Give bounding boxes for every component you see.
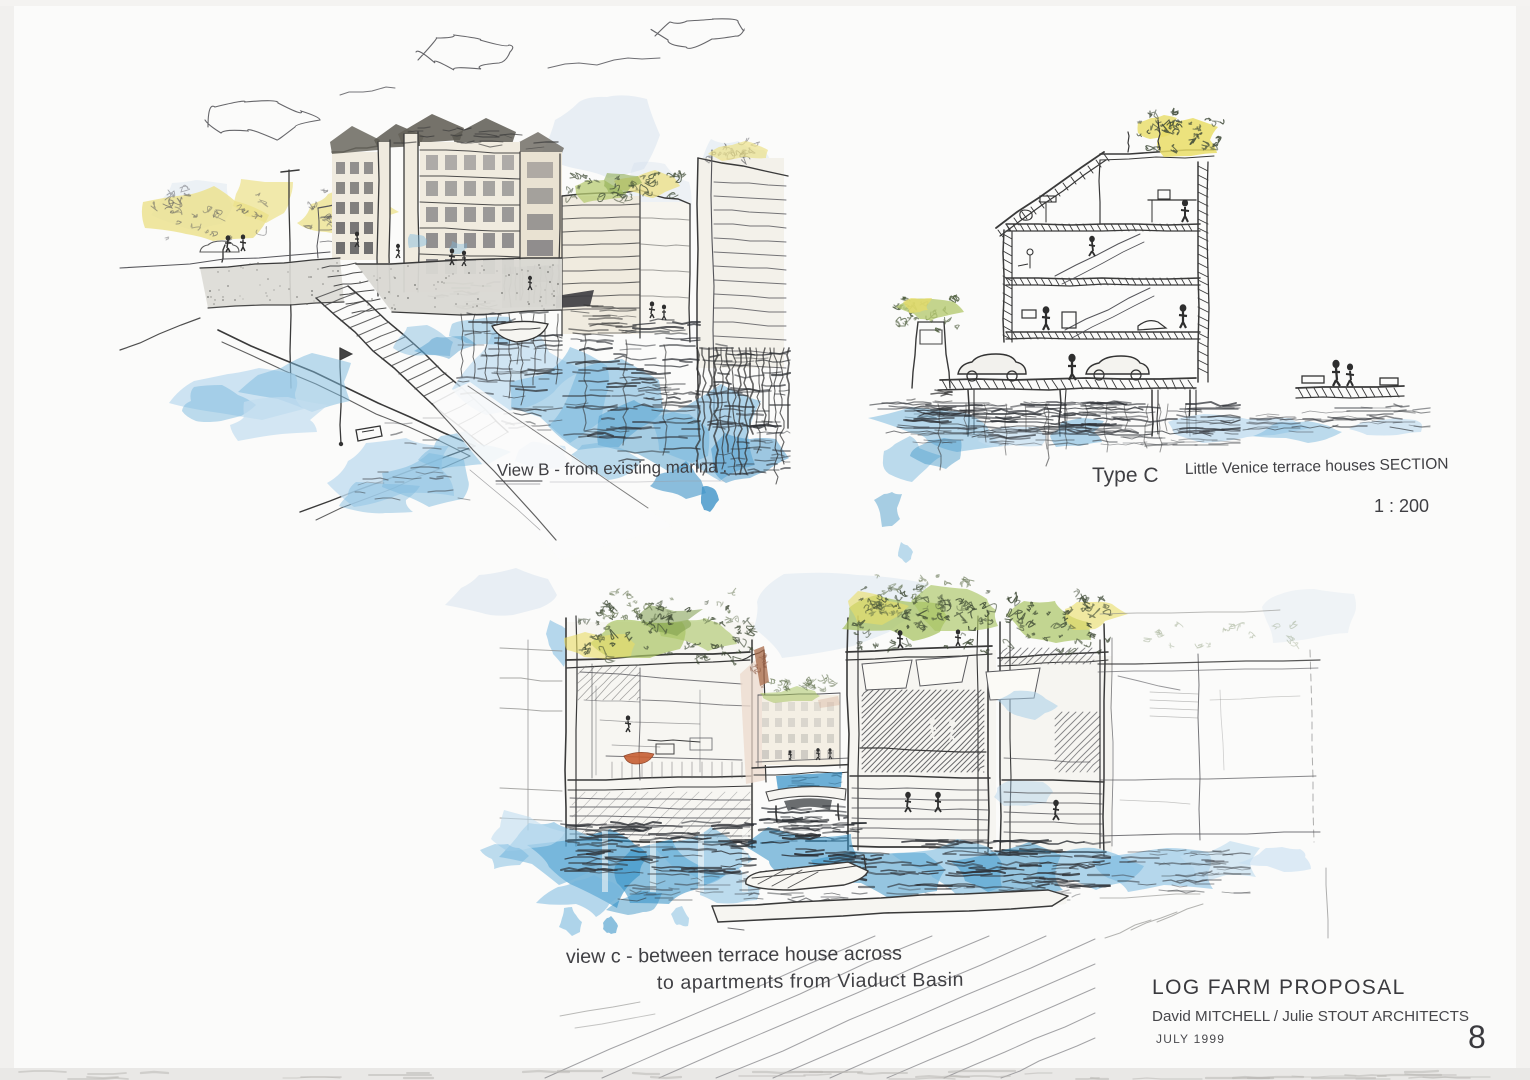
svg-text:View B - from existing marina: View B - from existing marina . (497, 457, 728, 480)
svg-text:to apartments from Viaduct Ba: to apartments from Viaduct Basin (657, 969, 964, 994)
svg-text:LOG FARM PROPOSAL: LOG FARM PROPOSAL (1152, 976, 1406, 999)
svg-text:JULY 1999: JULY 1999 (1156, 1032, 1225, 1046)
svg-text:8: 8 (1468, 1019, 1486, 1055)
svg-text:1 : 200: 1 : 200 (1374, 496, 1429, 516)
svg-text:view c - between terrace hou: view c - between terrace house across (566, 942, 902, 968)
svg-text:Type C: Type C (1092, 464, 1159, 487)
svg-text:David MITCHELL / Julie STOUT A: David MITCHELL / Julie STOUT ARCHITECTS (1152, 1008, 1469, 1025)
